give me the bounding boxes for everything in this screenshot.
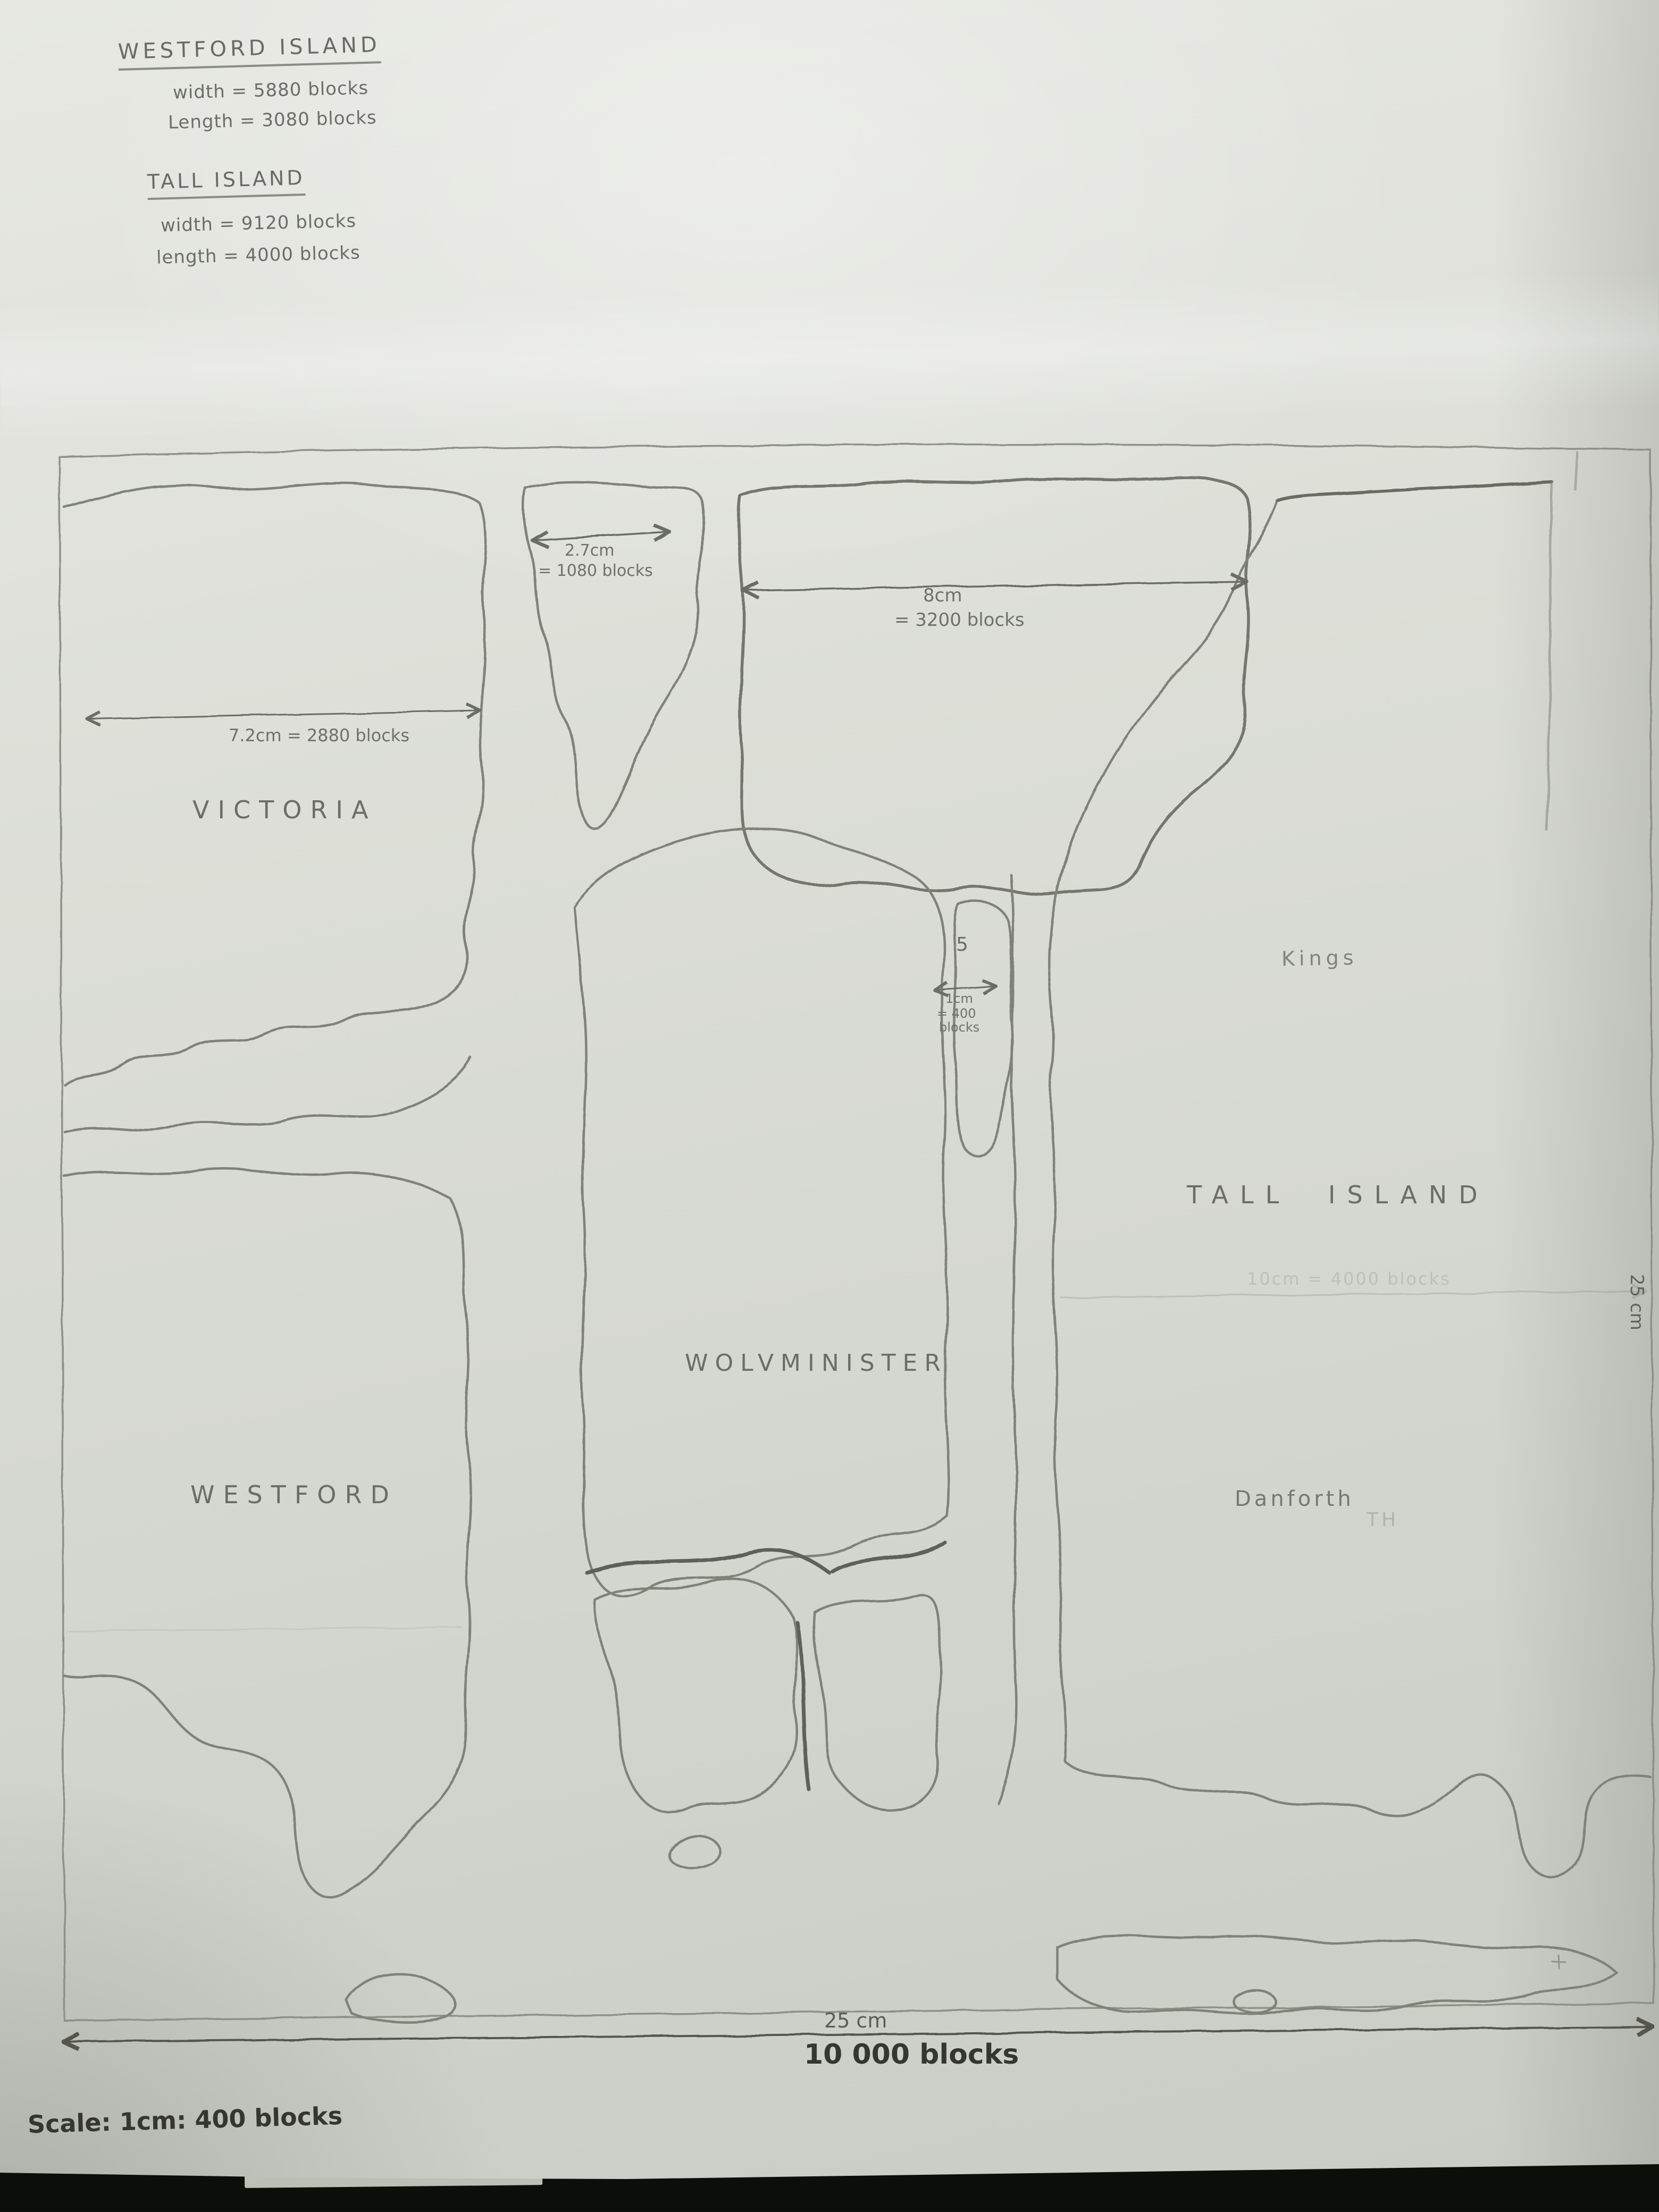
- label-islet-number: 5: [956, 934, 968, 956]
- label-wolvminister: WOLVMINISTER: [685, 1350, 948, 1377]
- label-danforth-faint: TH: [1367, 1509, 1399, 1531]
- south-lobe-west: [593, 1579, 797, 1812]
- scalebar-blocks: 10 000 blocks: [804, 2039, 1019, 2071]
- map-frame: [60, 445, 1654, 2021]
- label-tall-island: TALL ISLAND: [1187, 1180, 1489, 1209]
- annotation-small-island-eq: = 400: [937, 1006, 976, 1021]
- plus-mark: [1552, 1955, 1564, 1967]
- annotation-north-island-blocks: = 3200 blocks: [894, 609, 1025, 631]
- islet-southeast: [1234, 1990, 1275, 2012]
- mid-channel-bank: [999, 875, 1016, 1804]
- small-island-width-arrow: [936, 986, 994, 990]
- south-lobe-east: [814, 1595, 942, 1810]
- note-tall-title: TALL ISLAND: [147, 166, 305, 200]
- annotation-small-island-unit: blocks: [939, 1020, 979, 1035]
- victoria-river-bank: [64, 1058, 471, 1132]
- annotation-victoria-width: 7.2cm = 2880 blocks: [229, 725, 409, 745]
- annotation-north-islet-blocks: = 1080 blocks: [538, 562, 653, 580]
- scalebar-right-cm: 25 cm: [1626, 1274, 1647, 1330]
- tall-length-faint-line: [1061, 1291, 1644, 1297]
- annotation-tall-length-faint: 10cm = 4000 blocks: [1247, 1269, 1451, 1289]
- islet-center: [670, 1836, 720, 1869]
- annotation-small-island-cm: 1cm: [945, 991, 973, 1006]
- scalebar-cm: 25 cm: [824, 2009, 887, 2032]
- north-island-width-arrow: [744, 582, 1245, 590]
- westford-faint-line: [68, 1627, 462, 1631]
- label-danforth: Danforth: [1235, 1487, 1354, 1511]
- islet-west: [347, 1974, 455, 2022]
- label-kings: Kings: [1281, 946, 1358, 970]
- annotation-north-islet-cm: 2.7cm: [565, 541, 614, 560]
- north-island-coastline: [739, 477, 1250, 894]
- wolvminister-coastline: [574, 828, 949, 1596]
- photo-of-map: WESTFORD ISLAND width = 5880 blocks Leng…: [0, 0, 1659, 2212]
- westford-coastline: [64, 1169, 471, 1897]
- tall-island-north-shore: [1277, 482, 1552, 501]
- river-emphasis-lines: [587, 1543, 945, 1790]
- tall-island-notch-line: [1546, 482, 1552, 829]
- label-westford: WESTFORD: [190, 1480, 398, 1509]
- map-sketch: [0, 0, 1659, 2212]
- label-victoria: VICTORIA: [192, 795, 376, 824]
- victoria-coastline: [64, 483, 485, 1085]
- annotation-north-island-cm: 8cm: [923, 585, 962, 606]
- long-south-island: [1057, 1935, 1618, 2014]
- north-islet-width-arrow: [534, 532, 668, 540]
- victoria-width-arrow: [88, 710, 479, 719]
- tall-island-notch-side: [1575, 452, 1577, 489]
